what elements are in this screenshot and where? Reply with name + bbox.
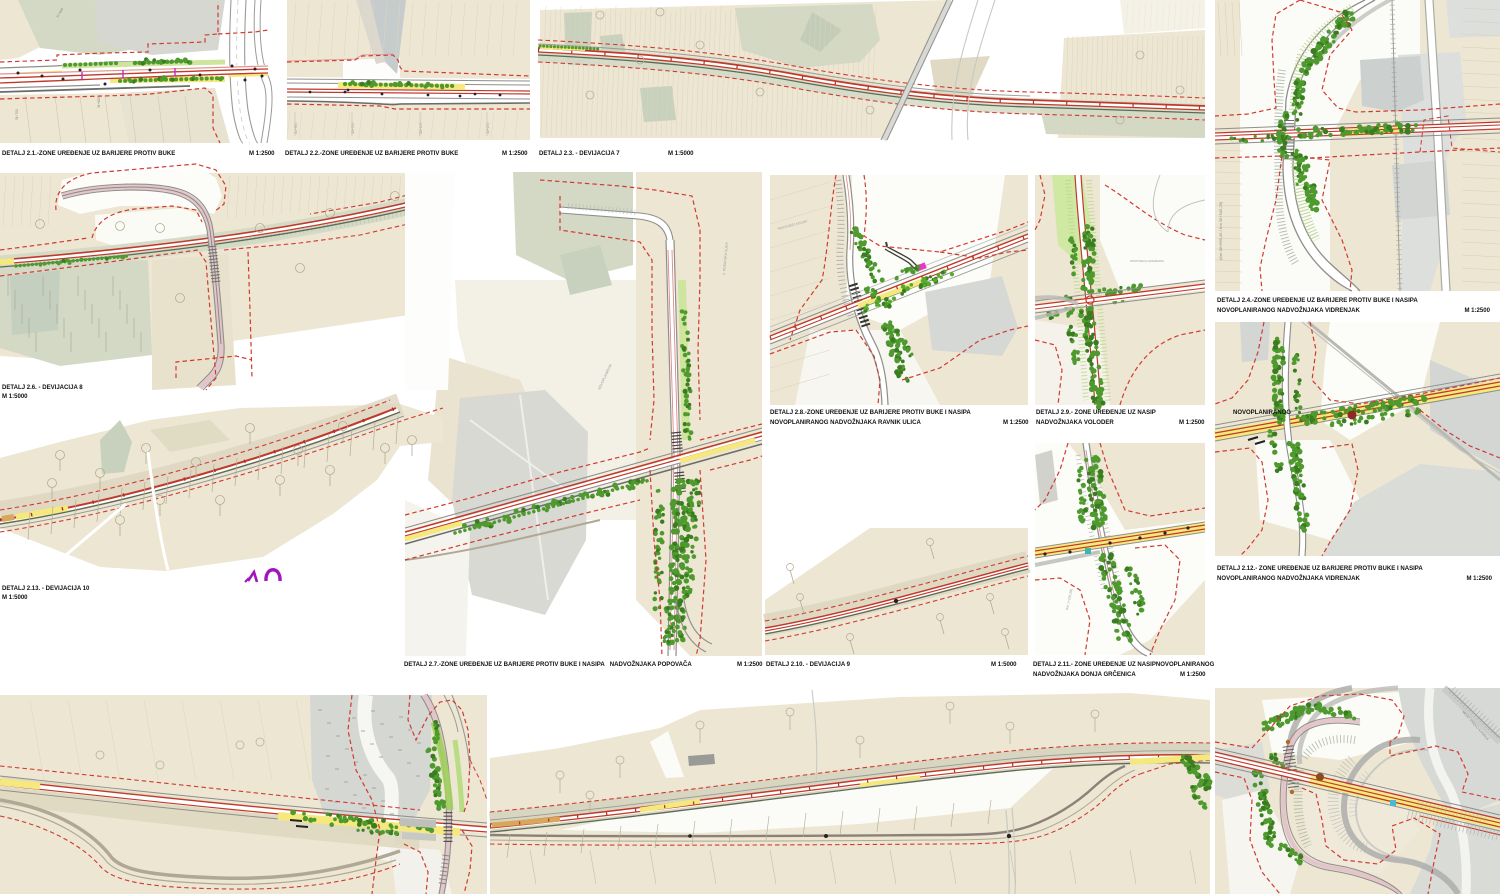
svg-text:NADVOŽNJAKA DONJA GRČENICA: NADVOŽNJAKA DONJA GRČENICA [1033,670,1136,678]
svg-text:32+000: 32+000 [351,122,355,134]
svg-text:DETALJ 2.13. - DEVIJACIJA 10: DETALJ 2.13. - DEVIJACIJA 10 [2,586,90,592]
svg-text:32+100: 32+100 [419,122,423,134]
svg-text:(Km 48+669,45 / Km 35+545,26): (Km 48+669,45 / Km 35+545,26) [1218,201,1223,260]
svg-text:DETALJ 2.1.-ZONE UREĐENJE UZ B: DETALJ 2.1.-ZONE UREĐENJE UZ BARIJERE PR… [2,151,175,157]
svg-text:M 1:2500: M 1:2500 [502,151,528,157]
svg-text:NADVOŽNJAKA VOLODER: NADVOŽNJAKA VOLODER [1036,418,1114,426]
svg-text:NOVOPLANIRANOG NADVOŽNJAKA VID: NOVOPLANIRANOG NADVOŽNJAKA VIDRENJAK [1217,574,1361,582]
svg-text:M 1:5000: M 1:5000 [2,595,28,601]
svg-text:NOVOPLANIRANOG NADVOŽNJAKA VID: NOVOPLANIRANOG NADVOŽNJAKA VIDRENJAK [1217,306,1361,314]
svg-text:DETALJ 2.2.-ZONE UREĐENJE UZ B: DETALJ 2.2.-ZONE UREĐENJE UZ BARIJERE PR… [285,151,458,157]
svg-text:DETALJ 2.10. - DEVIJACIJA 9: DETALJ 2.10. - DEVIJACIJA 9 [766,662,851,668]
svg-text:DETALJ 2.7.-ZONE UREĐENJE UZ B: DETALJ 2.7.-ZONE UREĐENJE UZ BARIJERE PR… [404,660,692,668]
svg-text:M 1:2500: M 1:2500 [1179,420,1205,426]
svg-text:31+700: 31+700 [15,109,19,120]
svg-text:M 1:2500: M 1:2500 [1003,420,1029,426]
svg-text:DETALJ 2.3. - DEVIJACIJA 7: DETALJ 2.3. - DEVIJACIJA 7 [539,151,620,157]
svg-text:DETALJ 2.6. - DEVIJACIJA 8: DETALJ 2.6. - DEVIJACIJA 8 [2,385,83,391]
svg-text:NOVOPLANIRANOG NADVOŽNJAKA RAV: NOVOPLANIRANOG NADVOŽNJAKA RAVNIK ULICA [770,418,921,426]
svg-text:NOVOPLANIRANOG: NOVOPLANIRANOG [1233,410,1291,416]
svg-text:M 1:2500: M 1:2500 [1464,308,1490,314]
svg-text:M 1:5000: M 1:5000 [668,151,694,157]
svg-text:DETALJ 2.9.- ZONE UREĐENJE UZ: DETALJ 2.9.- ZONE UREĐENJE UZ NASIP [1036,410,1156,416]
svg-text:M 1:2500: M 1:2500 [1180,672,1206,678]
svg-text:POSTOJECA GRADEVINA: POSTOJECA GRADEVINA [1130,259,1164,263]
svg-text:DETALJ 2.4.-ZONE UREĐENJE UZ B: DETALJ 2.4.-ZONE UREĐENJE UZ BARIJERE PR… [1217,298,1418,304]
svg-text:M 1:2500: M 1:2500 [737,662,763,668]
svg-text:DETALJ 2.12.- ZONE UREĐENJE UZ: DETALJ 2.12.- ZONE UREĐENJE UZ BARIJERE … [1217,566,1423,572]
svg-text:DETALJ 2.8.-ZONE UREĐENJE UZ B: DETALJ 2.8.-ZONE UREĐENJE UZ BARIJERE PR… [770,410,971,416]
svg-text:31+900: 31+900 [294,122,298,134]
svg-text:DETALJ 2.11.- ZONE UREĐENJE UZ: DETALJ 2.11.- ZONE UREĐENJE UZ NASIPNOVO… [1033,662,1215,668]
svg-text:31+800: 31+800 [97,97,101,108]
svg-text:M 1:5000: M 1:5000 [991,662,1017,668]
svg-text:32+200: 32+200 [486,122,490,134]
svg-text:M 1:2500: M 1:2500 [249,151,275,157]
svg-text:M 1:5000: M 1:5000 [2,394,28,400]
svg-text:M 1:2500: M 1:2500 [1466,576,1492,582]
